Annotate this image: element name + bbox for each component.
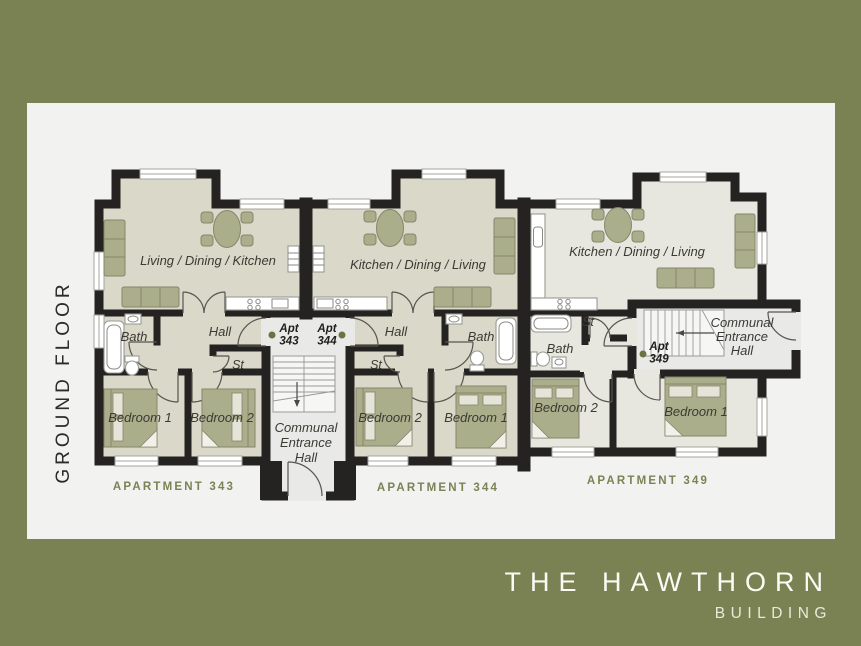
room-label-349-living: Kitchen / Dining / Living <box>569 244 706 259</box>
entrance-pier-left <box>260 461 282 500</box>
apartment-344-footer-label: APARTMENT 344 <box>377 482 499 494</box>
apartment-349-footer-label: APARTMENT 349 <box>587 475 709 487</box>
room-label-343-bedroom2: Bedroom 2 <box>190 410 254 425</box>
entry-dot-349 <box>640 351 647 358</box>
room-label-349-bath: Bath <box>547 341 574 356</box>
room-label-343-bedroom1: Bedroom 1 <box>108 410 172 425</box>
ground-floor-label: GROUND FLOOR <box>53 280 74 483</box>
room-label-344-bedroom1: Bedroom 1 <box>444 410 508 425</box>
brand-subtitle: BUILDING <box>715 605 832 622</box>
toilet-icon <box>470 365 484 371</box>
entry-dot-344 <box>339 332 346 339</box>
room-label-349-bedroom1: Bedroom 1 <box>664 404 728 419</box>
room-label-344-bedroom2: Bedroom 2 <box>358 410 422 425</box>
entry-tag-344: Apt344 <box>316 323 337 348</box>
entry-tag-349: Apt349 <box>648 341 669 366</box>
room-label-344-bath: Bath <box>468 329 495 344</box>
floor-plan-canvas: Living / Dining / Kitchen Bath Hall St B… <box>0 0 861 646</box>
room-label-344-living: Kitchen / Dining / Living <box>350 257 487 272</box>
apartment-343-footer-label: APARTMENT 343 <box>113 481 235 493</box>
entry-dot-343 <box>269 332 276 339</box>
room-label-343-store: St <box>232 358 244 372</box>
entrance-pier-right <box>334 461 356 500</box>
room-label-343-living: Living / Dining / Kitchen <box>140 253 276 268</box>
room-label-349-bedroom2: Bedroom 2 <box>534 400 598 415</box>
room-label-344-store: St <box>370 358 382 372</box>
room-label-343-bath: Bath <box>121 329 148 344</box>
stairs-icon-middle <box>273 356 335 412</box>
entry-tag-343: Apt343 <box>278 323 299 348</box>
room-label-349-store: St <box>582 315 594 329</box>
brand-name: THE HAWTHORN <box>505 567 832 597</box>
room-label-344-hall: Hall <box>385 324 409 339</box>
room-label-343-hall: Hall <box>209 324 233 339</box>
floorplan-page: Living / Dining / Kitchen Bath Hall St B… <box>0 0 861 646</box>
kitchen-counter-343 <box>226 297 299 310</box>
kitchen-counter-344 <box>314 297 387 310</box>
